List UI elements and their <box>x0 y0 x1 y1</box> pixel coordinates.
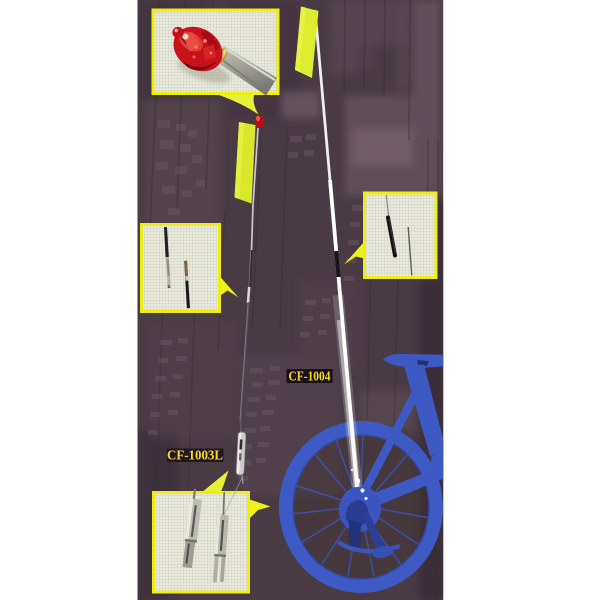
svg-text:CF-1003L: CF-1003L <box>167 448 223 463</box>
svg-text:CF-1004: CF-1004 <box>289 369 331 384</box>
